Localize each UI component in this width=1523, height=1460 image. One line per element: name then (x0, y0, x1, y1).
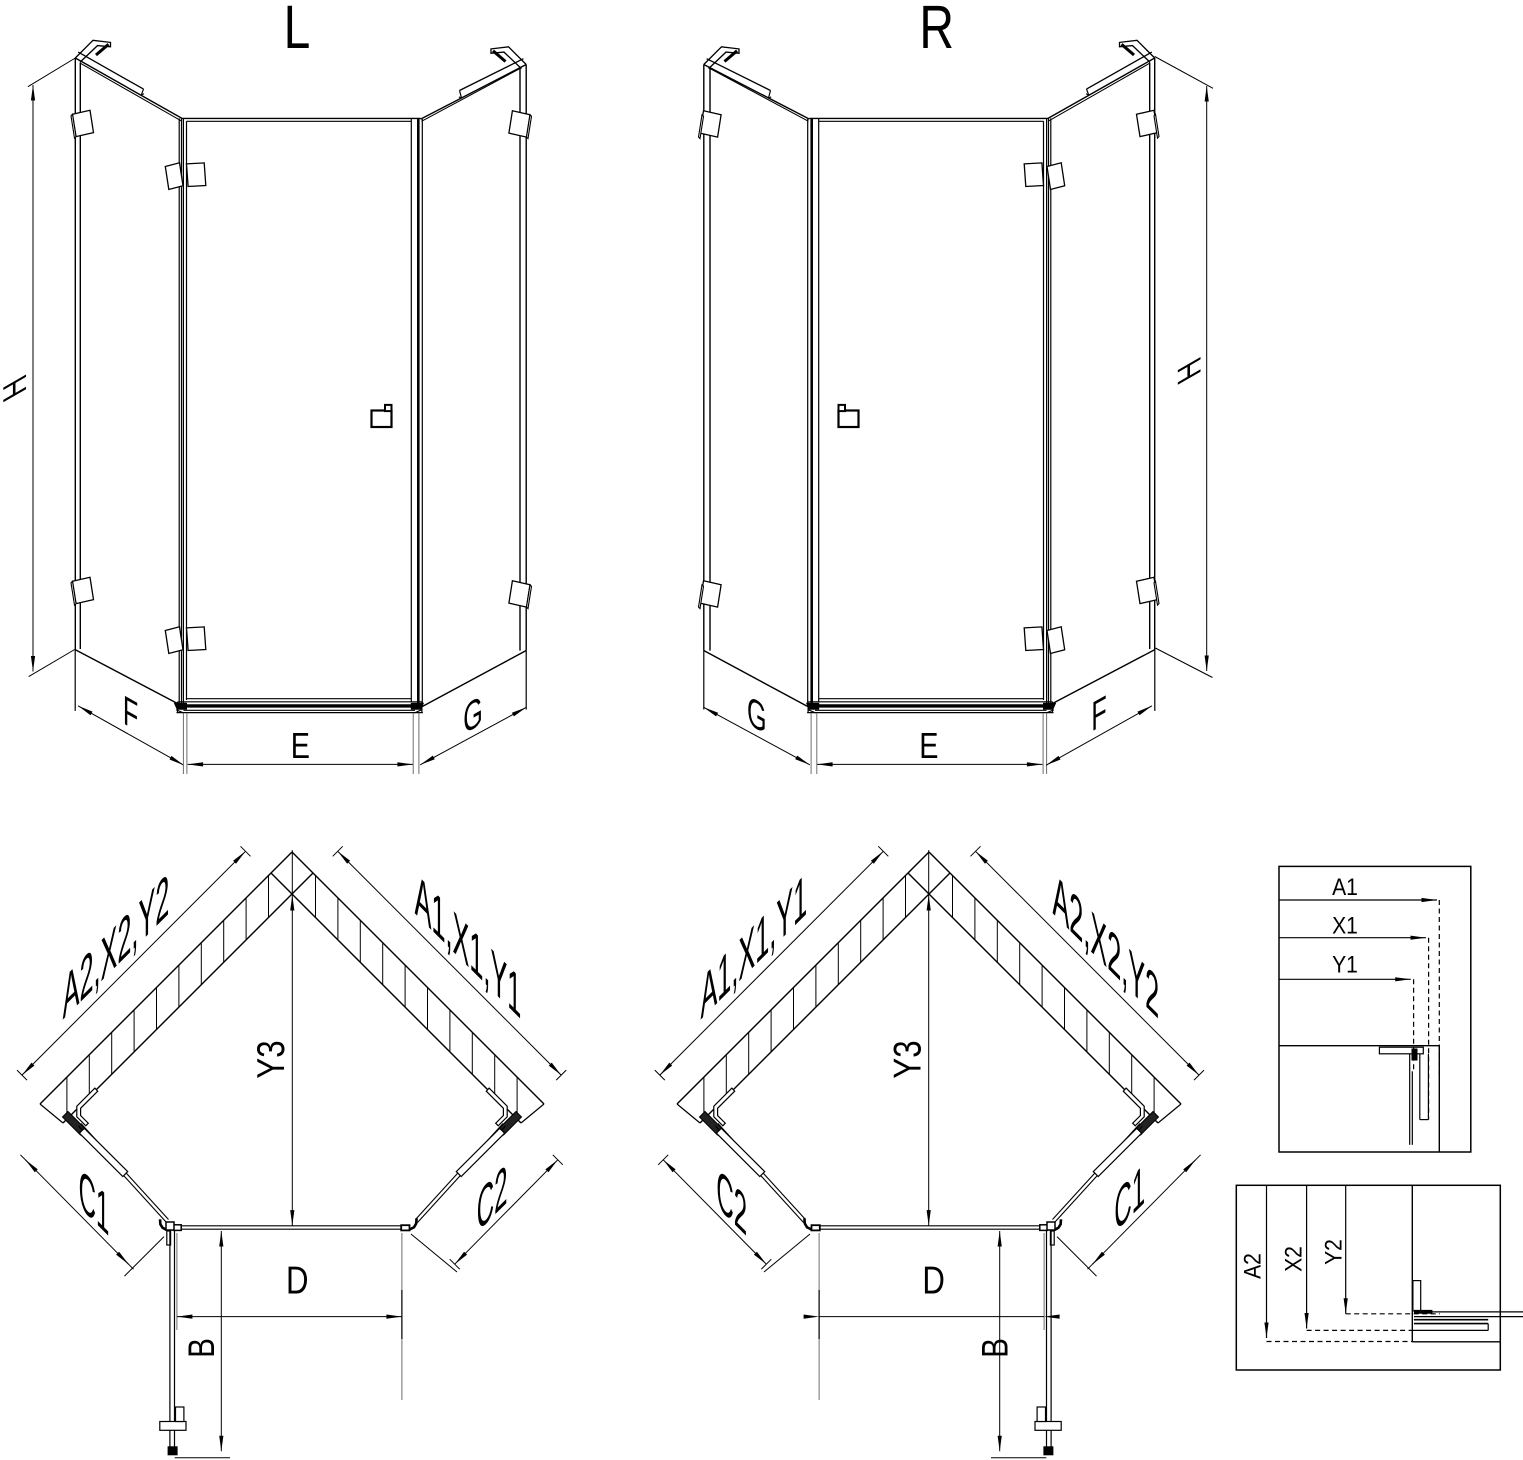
svg-text:F: F (123, 686, 138, 741)
svg-text:B: B (182, 1338, 223, 1358)
svg-text:Y1: Y1 (1332, 951, 1358, 978)
svg-text:D: D (922, 1259, 945, 1302)
svg-text:A1: A1 (1332, 874, 1358, 901)
svg-text:X1: X1 (1332, 912, 1358, 939)
svg-text:Y3: Y3 (250, 1040, 293, 1078)
svg-text:E: E (919, 725, 938, 766)
svg-text:Y3: Y3 (886, 1040, 929, 1078)
svg-text:X2: X2 (1280, 1246, 1307, 1272)
svg-text:F: F (1091, 686, 1106, 741)
svg-text:A2: A2 (1239, 1253, 1266, 1279)
svg-text:D: D (286, 1259, 309, 1302)
svg-text:R: R (919, 0, 954, 62)
svg-text:E: E (291, 725, 310, 766)
svg-text:B: B (975, 1338, 1016, 1358)
svg-text:Y2: Y2 (1320, 1239, 1347, 1265)
svg-text:L: L (284, 0, 311, 62)
